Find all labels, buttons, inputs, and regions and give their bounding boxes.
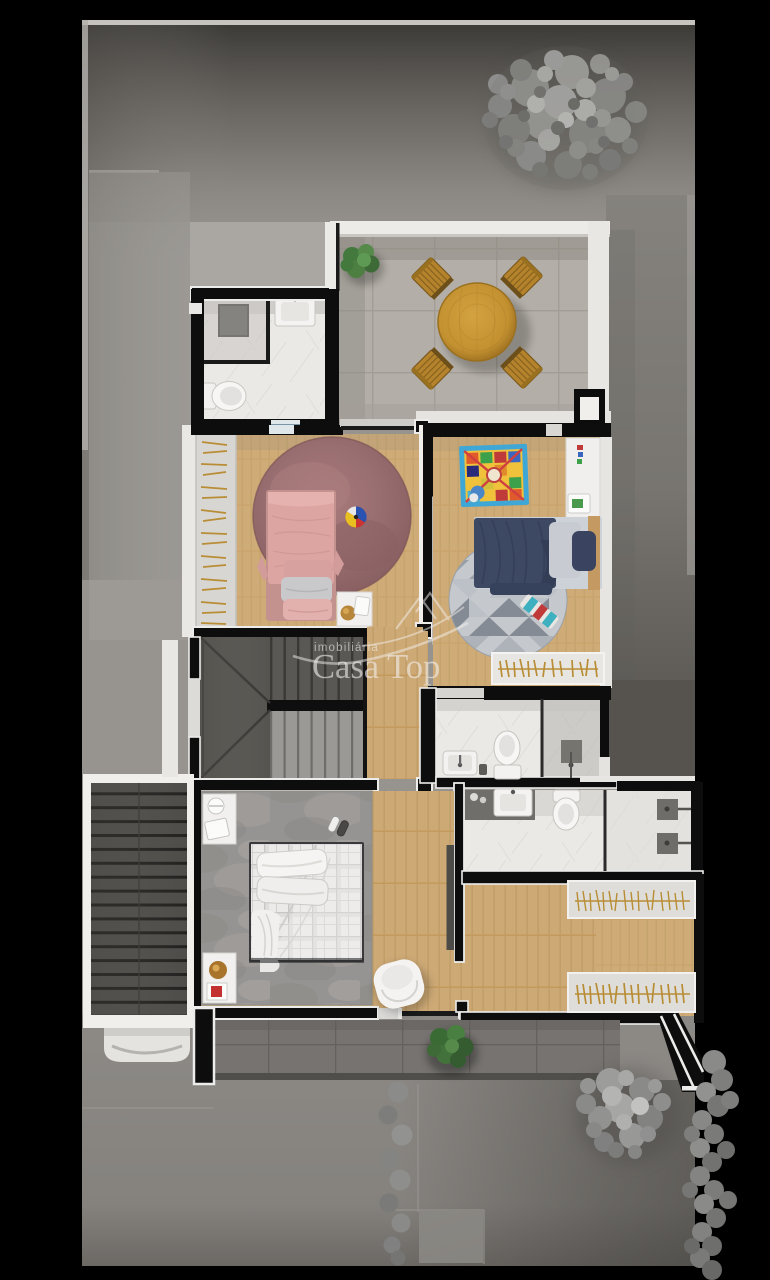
svg-text:Casa Top: Casa Top [312, 648, 440, 686]
